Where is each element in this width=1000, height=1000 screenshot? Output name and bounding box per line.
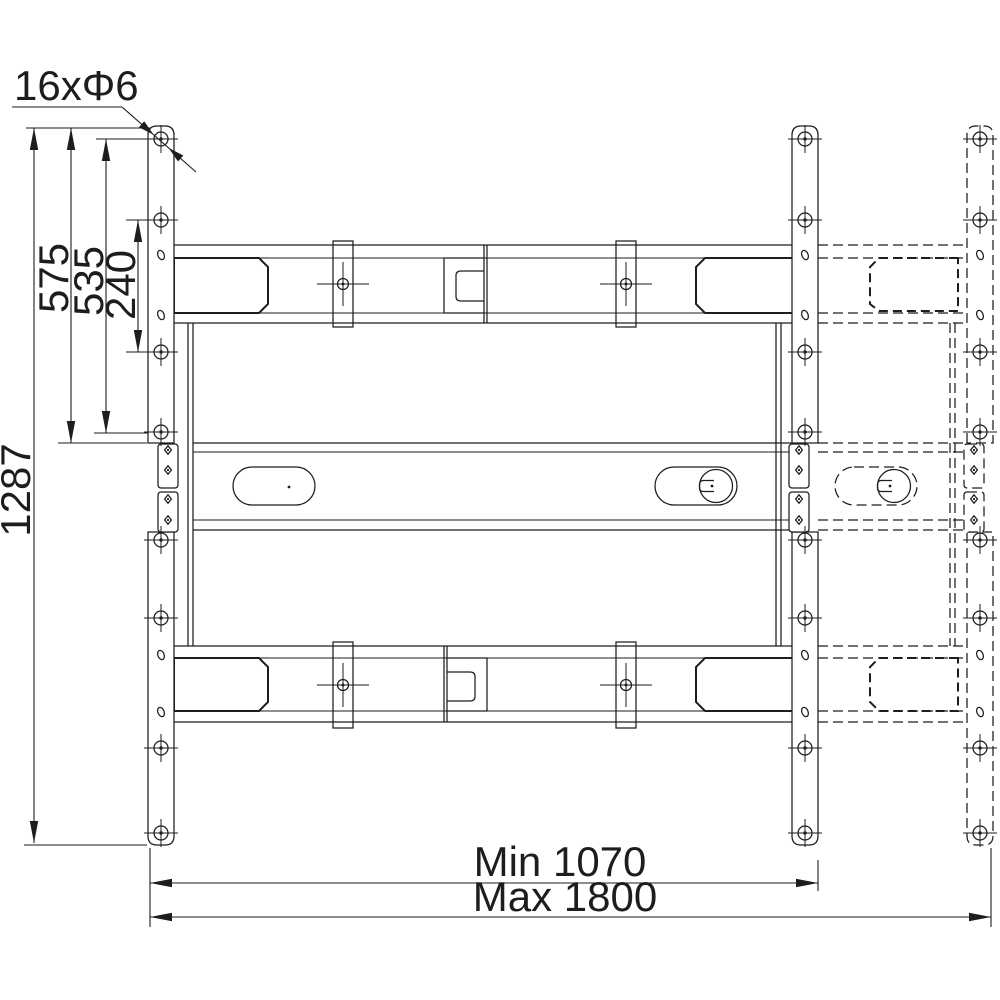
hole-callout-label: 16xΦ6 xyxy=(14,62,139,109)
bottom-crossbar xyxy=(174,642,967,728)
extended-rail xyxy=(964,126,993,845)
clamp-hole-icon xyxy=(317,262,369,306)
top-right-slot xyxy=(696,258,792,313)
top-latch-notch xyxy=(444,245,487,323)
arrow-icon xyxy=(969,913,991,921)
lock-pin-extended xyxy=(878,470,911,503)
arrow-icon xyxy=(30,128,38,150)
arrow-icon xyxy=(67,421,75,443)
dim-max-label: Max 1800 xyxy=(473,873,657,920)
arrow-icon xyxy=(102,411,110,433)
technical-drawing: 16xΦ6 1287 575 535 240 Min 1070 Max 1800 xyxy=(0,0,1000,1000)
dim-1287-label: 1287 xyxy=(0,443,39,536)
clamp-hole-icon xyxy=(600,663,652,707)
clamp-hole-icon xyxy=(600,262,652,306)
arrow-icon xyxy=(134,220,142,242)
right-rail xyxy=(789,126,818,845)
top-crossbar xyxy=(174,241,967,327)
bottom-left-slot xyxy=(174,658,268,711)
center-beam xyxy=(193,443,963,530)
clamp-holes xyxy=(317,262,652,707)
arrow-icon xyxy=(796,879,818,887)
arrow-icon xyxy=(102,139,110,161)
beam-slot-left xyxy=(233,467,315,505)
bottom-latch-notch xyxy=(444,646,487,722)
top-extended-slot xyxy=(870,258,958,311)
left-rail xyxy=(148,126,178,845)
bottom-extended-slot xyxy=(870,658,958,711)
mount-plate-edges xyxy=(188,323,955,646)
dim-240-label: 240 xyxy=(97,250,144,320)
drawing-page: 16xΦ6 1287 575 535 240 Min 1070 Max 1800 xyxy=(0,0,1000,1000)
arrow-icon xyxy=(30,821,38,843)
arrow-icon xyxy=(150,879,172,887)
arrow-icon xyxy=(134,330,142,352)
arrow-icon xyxy=(150,913,172,921)
lock-pin-mid xyxy=(700,470,733,503)
clamp-hole-icon xyxy=(317,663,369,707)
arrow-icon xyxy=(67,128,75,150)
bottom-right-slot xyxy=(696,658,792,711)
top-left-slot xyxy=(174,258,268,313)
